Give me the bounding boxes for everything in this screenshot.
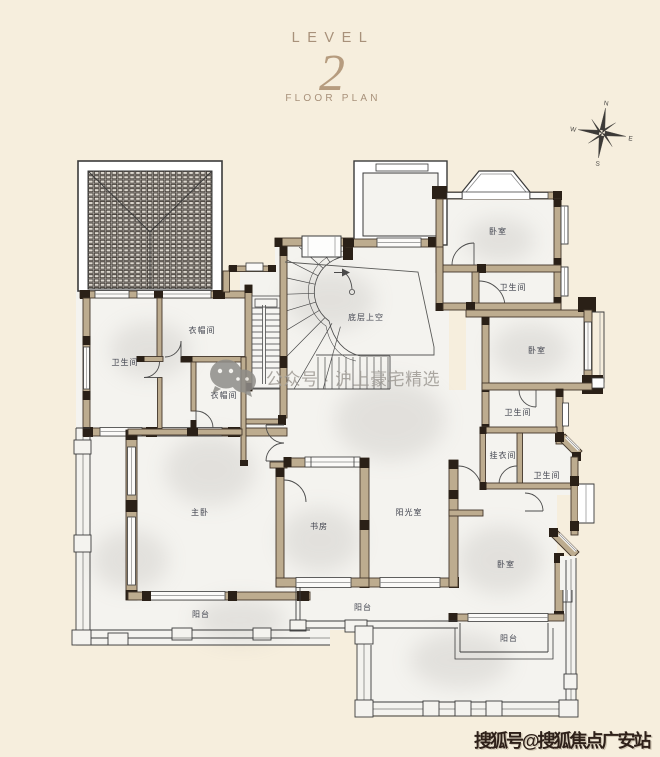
svg-text:N: N (603, 100, 609, 108)
svg-text:E: E (628, 135, 634, 143)
svg-text:W: W (570, 126, 578, 134)
svg-text:底层上空: 底层上空 (348, 312, 384, 322)
svg-text:LEVEL: LEVEL (292, 30, 375, 46)
svg-text:搜狐号@搜狐焦点广安站: 搜狐号@搜狐焦点广安站 (474, 730, 652, 751)
svg-text:阳台: 阳台 (192, 609, 210, 619)
svg-text:卧室: 卧室 (489, 226, 507, 236)
svg-text:书房: 书房 (310, 521, 328, 531)
svg-text:阳台: 阳台 (354, 602, 372, 612)
svg-text:卧室: 卧室 (497, 559, 515, 569)
svg-text:卫生间: 卫生间 (505, 407, 532, 417)
svg-text:主卧: 主卧 (191, 507, 209, 517)
svg-text:阳台: 阳台 (500, 633, 518, 643)
svg-text:S: S (595, 160, 601, 168)
svg-text:阳光室: 阳光室 (396, 507, 423, 517)
svg-text:卫生间: 卫生间 (534, 470, 561, 480)
svg-text:FLOOR PLAN: FLOOR PLAN (285, 93, 380, 104)
svg-text:卧室: 卧室 (528, 345, 546, 355)
svg-text:衣帽间: 衣帽间 (189, 325, 216, 335)
svg-text:卫生间: 卫生间 (500, 282, 527, 292)
svg-text:挂衣间: 挂衣间 (490, 450, 517, 460)
svg-text:卫生间: 卫生间 (112, 357, 139, 367)
svg-text:公众号 · 沪上豪宅精选: 公众号 · 沪上豪宅精选 (266, 369, 440, 389)
